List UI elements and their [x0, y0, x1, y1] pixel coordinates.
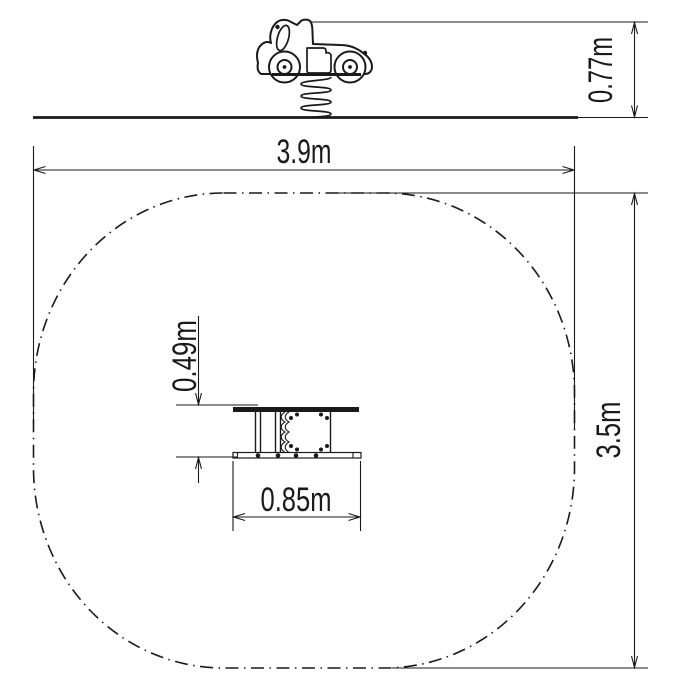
dimension-label: 3.9m	[277, 133, 332, 171]
safety-zone-depth-dimension: 3.5m	[330, 193, 648, 668]
spring-coil	[301, 77, 331, 118]
plate-bolt-dots	[289, 413, 329, 452]
drawing-sheet: 0.77m	[0, 0, 676, 684]
safety-zone-width-dimension: 3.9m	[34, 133, 575, 430]
safety-zone-boundary	[34, 193, 575, 668]
support-rails	[256, 412, 281, 453]
car-spring-rider-figure	[257, 20, 372, 118]
dimension-label: 0.77m	[582, 37, 620, 103]
dimension-label: 3.5m	[590, 402, 628, 459]
car-front-wheel-hub	[278, 60, 292, 74]
dimension-label: 0.85m	[261, 481, 332, 519]
dimension-label: 0.49m	[166, 320, 204, 392]
spring-rider-top-view	[233, 407, 361, 458]
car-handle-hole	[275, 25, 279, 29]
spring-wave-edge-outer	[281, 412, 285, 453]
car-rear-wheel-hub	[343, 60, 357, 74]
technical-drawing: 0.77m	[0, 0, 676, 684]
spring-wave-edge-inner	[285, 412, 289, 453]
car-rear-bolt-dot	[363, 51, 367, 55]
plan-view: 3.9m 3.5m 0.49m 0.85m	[34, 133, 649, 668]
footprint-width-dimension: 0.85m	[233, 461, 361, 531]
side-elevation-view: 0.77m	[33, 20, 648, 118]
